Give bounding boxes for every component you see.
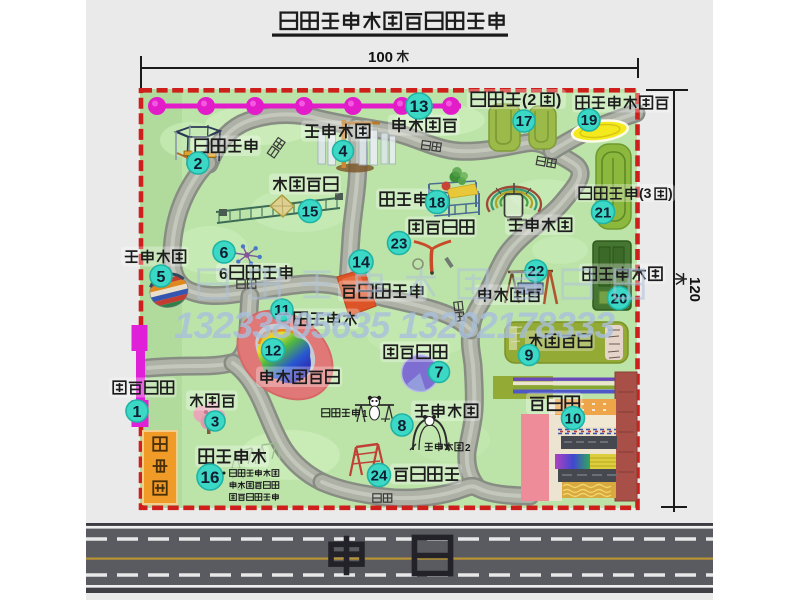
svg-text:5: 5 (157, 269, 166, 286)
svg-text:(2: (2 (522, 92, 536, 109)
svg-text:13233805635 13202178333: 13233805635 13202178333 (174, 305, 615, 346)
svg-text:9: 9 (525, 348, 534, 365)
svg-text:8: 8 (398, 418, 407, 435)
svg-text:7: 7 (435, 365, 444, 382)
svg-text:13: 13 (410, 97, 429, 116)
svg-text:18: 18 (429, 195, 446, 212)
svg-text:1: 1 (133, 404, 142, 421)
svg-text:2: 2 (194, 156, 203, 173)
svg-text:3: 3 (211, 413, 219, 430)
svg-text:16: 16 (201, 468, 220, 487)
svg-text:10: 10 (565, 411, 582, 428)
svg-text:14: 14 (352, 255, 370, 272)
svg-text:1: 1 (362, 409, 368, 420)
svg-text:2: 2 (465, 443, 471, 454)
svg-text:6: 6 (220, 245, 229, 262)
svg-text:23: 23 (391, 236, 408, 253)
svg-text:4: 4 (339, 144, 348, 161)
svg-text:24: 24 (371, 468, 388, 485)
svg-text:17: 17 (516, 113, 533, 130)
svg-text:120: 120 (686, 277, 703, 302)
svg-text:(3: (3 (639, 185, 652, 201)
svg-text:): ) (556, 92, 561, 109)
svg-text:100: 100 (368, 49, 393, 66)
svg-text:): ) (668, 185, 673, 201)
svg-text:19: 19 (581, 112, 598, 129)
svg-text:15: 15 (302, 204, 319, 221)
svg-text:21: 21 (595, 205, 612, 222)
